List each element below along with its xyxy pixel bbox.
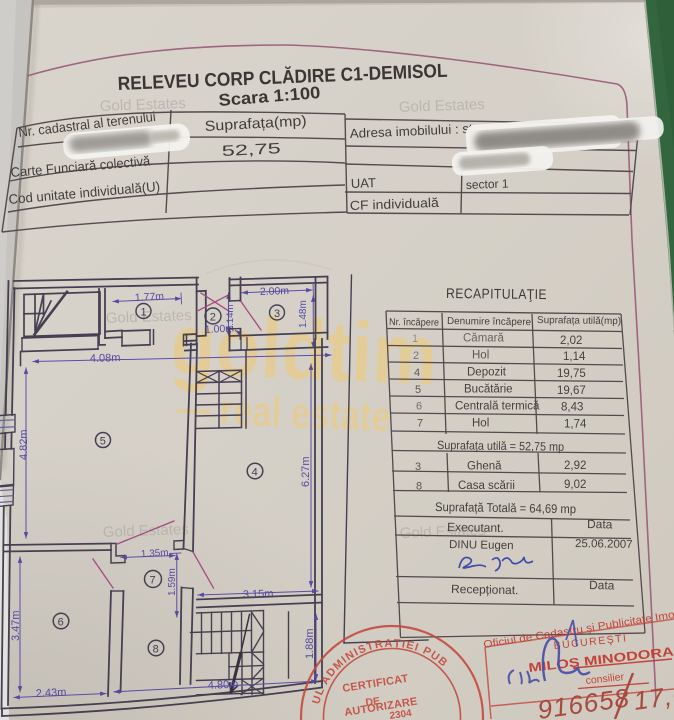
svg-text:Denumire încăpere: Denumire încăpere	[447, 316, 532, 328]
svg-text:3: 3	[415, 461, 421, 473]
svg-text:25.06.2007: 25.06.2007	[575, 538, 633, 551]
svg-text:19,75: 19,75	[557, 368, 586, 380]
svg-text:5: 5	[415, 384, 421, 396]
svg-text:7: 7	[150, 575, 156, 587]
svg-text:1,14: 1,14	[563, 351, 586, 363]
svg-text:4: 4	[414, 367, 420, 379]
svg-text:Cămară: Cămară	[463, 333, 505, 345]
svg-text:Suprafață Totală = 64,69 mp: Suprafață Totală = 64,69 mp	[435, 500, 576, 516]
svg-text:2.00m: 2.00m	[260, 285, 290, 298]
svg-text:Gold Estates: Gold Estates	[103, 521, 189, 541]
svg-text:Recepționat.: Recepționat.	[451, 582, 519, 597]
svg-text:1.88m: 1.88m	[304, 628, 316, 659]
svg-text:4.82m: 4.82m	[18, 429, 30, 460]
svg-text:8: 8	[153, 644, 159, 656]
svg-text:Hol: Hol	[472, 418, 489, 430]
svg-text:1.59m: 1.59m	[167, 568, 178, 596]
svg-text:52,75: 52,75	[221, 140, 281, 160]
svg-text:6: 6	[58, 617, 64, 629]
svg-text:UAT: UAT	[351, 175, 377, 191]
svg-text:DINU Eugen: DINU Eugen	[449, 539, 514, 552]
svg-text:8,43: 8,43	[561, 402, 583, 414]
svg-text:3: 3	[274, 308, 280, 320]
svg-text:4.80m: 4.80m	[208, 678, 239, 692]
svg-text:1.35m: 1.35m	[141, 548, 169, 560]
svg-text:4.08m: 4.08m	[90, 352, 121, 365]
svg-text:5: 5	[100, 436, 106, 448]
svg-text:Nr. încăpere: Nr. încăpere	[389, 317, 440, 329]
svg-text:Suprafața utilă(mp): Suprafața utilă(mp)	[537, 315, 621, 327]
svg-text:8: 8	[416, 481, 422, 493]
svg-text:9,02: 9,02	[564, 479, 586, 491]
svg-text:Executant.: Executant.	[447, 520, 504, 535]
svg-text:Gold Estates: Gold Estates	[399, 96, 485, 116]
svg-text:1: 1	[412, 333, 418, 345]
svg-text:2304: 2304	[389, 708, 413, 720]
svg-text:Data: Data	[589, 578, 615, 592]
svg-text:19,67: 19,67	[557, 385, 586, 397]
svg-text:2: 2	[413, 350, 419, 362]
svg-text:Bucătărie: Bucătărie	[464, 384, 513, 396]
svg-text:Data: Data	[587, 517, 613, 531]
svg-text:3.47m: 3.47m	[10, 610, 22, 641]
svg-text:2: 2	[210, 312, 216, 324]
svg-text:6.27m: 6.27m	[300, 456, 312, 487]
svg-text:sector 1: sector 1	[466, 177, 509, 192]
svg-text:1: 1	[141, 307, 147, 319]
svg-text:Casa scării: Casa scării	[458, 480, 515, 492]
svg-text:CF individuală: CF individuală	[350, 195, 440, 213]
svg-text:2,92: 2,92	[564, 460, 586, 472]
svg-text:Ghenă: Ghenă	[467, 461, 502, 473]
svg-text:Hol: Hol	[472, 350, 489, 362]
svg-text:2.43m: 2.43m	[36, 686, 67, 700]
svg-text:7: 7	[417, 418, 423, 430]
svg-text:6: 6	[416, 401, 422, 413]
svg-text:1,74: 1,74	[564, 419, 587, 431]
svg-text:2,02: 2,02	[560, 335, 582, 347]
svg-text:1.77m: 1.77m	[135, 290, 165, 304]
svg-text:4: 4	[252, 467, 258, 479]
svg-text:Depozit: Depozit	[467, 367, 507, 379]
svg-text:RECAPITULAŢIE: RECAPITULAŢIE	[446, 285, 547, 302]
svg-text:Centrală termică: Centrală termică	[455, 401, 540, 413]
svg-text:Suprafața utilă = 52,75 mp: Suprafața utilă = 52,75 mp	[437, 438, 564, 454]
svg-text:1.48m: 1.48m	[298, 300, 309, 328]
svg-text:3.15m: 3.15m	[243, 588, 274, 601]
